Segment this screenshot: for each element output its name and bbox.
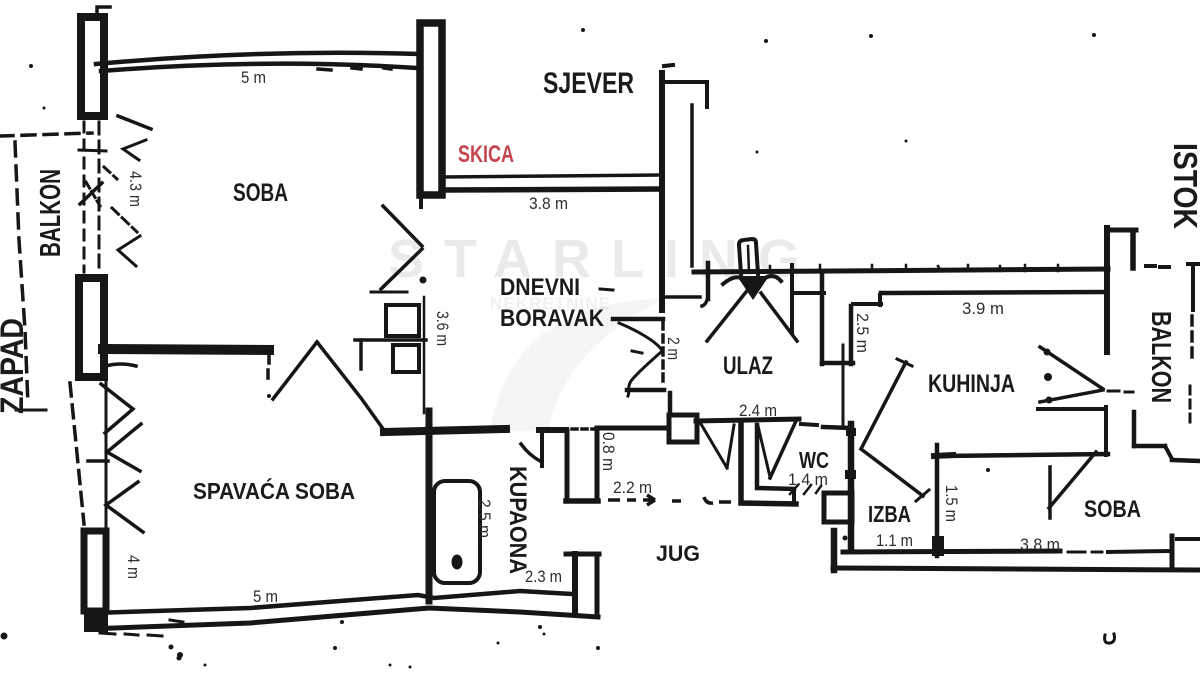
svg-text:3.6 m: 3.6 m [433, 311, 452, 346]
svg-text:ISTOK: ISTOK [1167, 143, 1200, 229]
svg-text:ULAZ: ULAZ [723, 352, 773, 380]
svg-text:4.3 m: 4.3 m [126, 171, 145, 207]
svg-text:3.9 m: 3.9 m [962, 299, 1004, 318]
svg-text:SOBA: SOBA [1084, 496, 1141, 523]
svg-text:2.2 m: 2.2 m [613, 478, 652, 497]
svg-text:1.5 m: 1.5 m [942, 485, 961, 522]
svg-text:2 m: 2 m [664, 337, 683, 360]
svg-text:3.8 m: 3.8 m [1020, 535, 1060, 554]
svg-text:2.3 m: 2.3 m [525, 567, 562, 586]
svg-text:3.8 m: 3.8 m [529, 194, 568, 213]
svg-text:2.4 m: 2.4 m [739, 401, 777, 420]
svg-text:4 m: 4 m [124, 555, 143, 579]
svg-text:JUG: JUG [656, 541, 700, 566]
svg-text:5 m: 5 m [241, 68, 266, 87]
svg-text:BALKON: BALKON [35, 169, 67, 257]
svg-text:SKICA: SKICA [458, 141, 514, 168]
svg-text:ZAPAD: ZAPAD [0, 318, 30, 414]
svg-text:KUHINJA: KUHINJA [928, 370, 1015, 398]
svg-text:5 m: 5 m [253, 587, 278, 606]
svg-text:1.1 m: 1.1 m [876, 531, 913, 550]
svg-text:SOBA: SOBA [233, 179, 288, 207]
svg-text:1.4 m: 1.4 m [788, 470, 828, 489]
svg-text:0.8 m: 0.8 m [599, 432, 618, 471]
svg-text:DNEVNI: DNEVNI [500, 274, 580, 301]
svg-text:IZBA: IZBA [868, 501, 911, 527]
svg-text:BALKON: BALKON [1146, 311, 1177, 403]
svg-text:SPAVAĆA SOBA: SPAVAĆA SOBA [193, 477, 355, 504]
svg-text:2.5 m: 2.5 m [475, 499, 494, 538]
svg-text:KUPAONA: KUPAONA [504, 466, 531, 574]
svg-text:2.5 m: 2.5 m [853, 313, 872, 353]
svg-text:SJEVER: SJEVER [543, 67, 634, 100]
svg-text:BORAVAK: BORAVAK [500, 305, 605, 332]
